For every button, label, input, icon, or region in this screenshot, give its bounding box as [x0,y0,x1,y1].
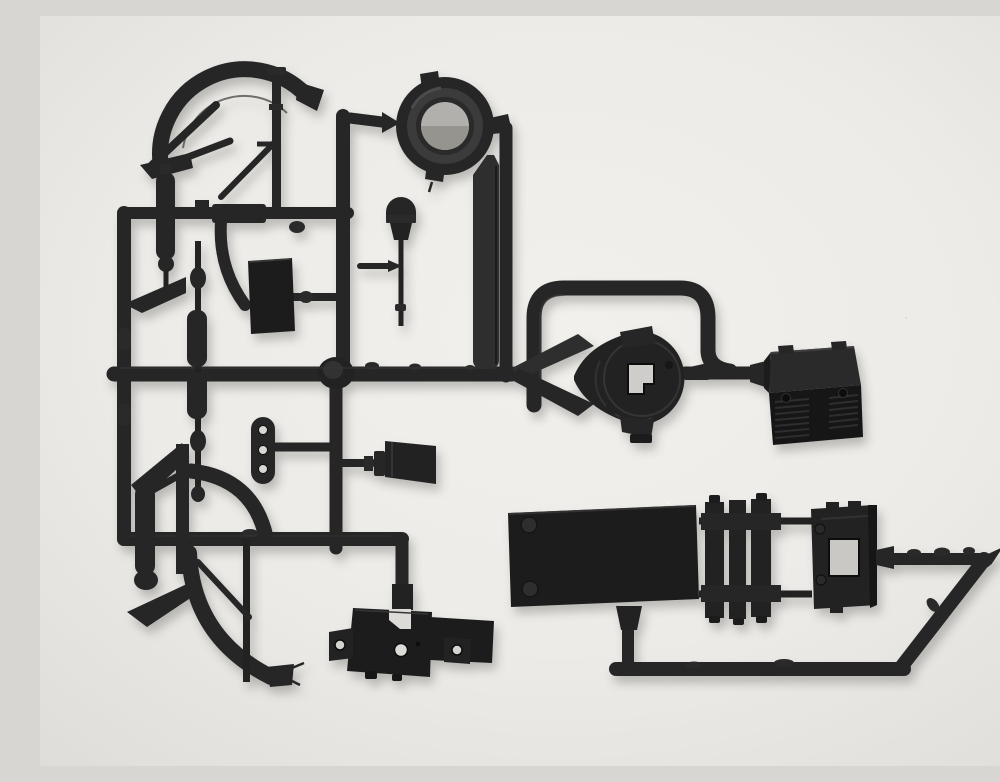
bracket-ear-hole [335,640,345,650]
three-hole-strap-part [251,417,275,484]
sprue-photo [40,16,1000,766]
chassis-plate-part [508,505,699,607]
sprue-photo-canvas [40,16,1000,766]
ring-top-tab [420,71,440,89]
bracket-ear-hole [452,645,462,655]
plate-rivet [521,517,537,533]
frame-opening [829,539,859,576]
rect-panel-part [248,258,295,334]
flat-strip-part [473,155,499,368]
plate-rivet [522,581,538,597]
shock-absorber-lower [135,485,155,575]
bracket-centre-hole [395,644,408,657]
gate-ring-left-arm [350,118,382,122]
ring-bottom-tab [425,164,445,182]
shock-absorber-upper [156,172,175,260]
